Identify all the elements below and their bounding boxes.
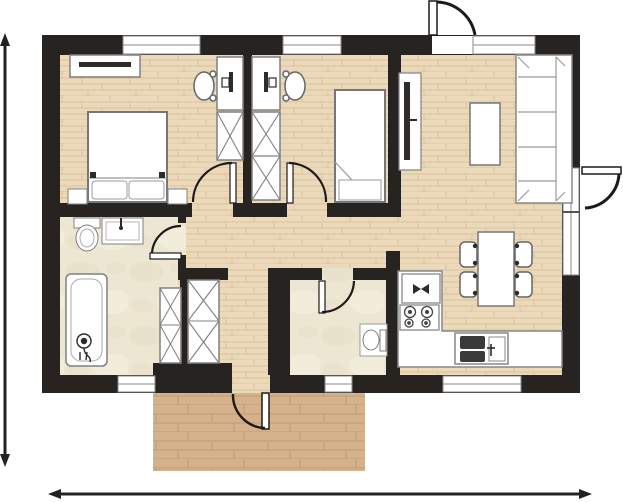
window-top-1: [123, 36, 200, 54]
appliance-box: [402, 274, 440, 303]
wc-room: [360, 324, 387, 356]
bathroom-door-opening: [178, 223, 186, 255]
toilet: [74, 218, 100, 251]
wall-bedrooms-south-c: [327, 203, 401, 217]
wall-wc-north-b: [353, 268, 390, 280]
floor-plan-image: [0, 0, 623, 502]
single-bed: [335, 90, 385, 202]
wall-bathroom-east-a: [178, 217, 186, 223]
wc-door-opening: [322, 268, 353, 280]
window-bottom-1: [118, 376, 155, 392]
bed-corner-mark-right: [159, 172, 165, 178]
bedroom1-door-opening: [192, 203, 233, 217]
wardrobe-bedroom2: [252, 112, 280, 200]
wall-below-wardrobes: [153, 363, 232, 375]
tv-panel: [399, 73, 421, 170]
bedroom2-door-opening: [287, 203, 327, 217]
wall-wc-north-a: [290, 268, 322, 280]
kitchen-sink: [455, 333, 508, 364]
dining-table: [478, 232, 514, 306]
sofa: [516, 55, 572, 203]
window-bottom-3: [443, 376, 521, 392]
washbasin: [102, 218, 143, 244]
side-door-right: [582, 167, 621, 208]
wardrobe-bedroom1: [217, 112, 243, 160]
deck-door-opening: [232, 375, 270, 393]
wall-bedrooms-south-a: [60, 203, 192, 217]
pillow-right: [129, 181, 164, 199]
toilet: [363, 330, 386, 351]
bathtub: [66, 274, 107, 366]
arrowhead-right-icon: [579, 489, 592, 499]
cooktop: [400, 305, 439, 330]
door-swing-arc: [585, 174, 619, 208]
arrowhead-down-icon: [0, 454, 10, 467]
wall-bedrooms-south-b: [233, 203, 287, 217]
bed-corner-mark-left: [90, 172, 96, 178]
window-bottom-2: [325, 376, 352, 392]
hallway-wardrobe: [188, 280, 219, 363]
wall-exterior-left: [42, 35, 60, 393]
wall-passage-east: [268, 268, 290, 375]
floor-plan-svg: [0, 0, 623, 502]
arrowhead-left-icon: [48, 489, 61, 499]
wardrobe-bathroom: [160, 288, 181, 363]
nightstand-right: [168, 189, 187, 204]
entrance-door-opening: [432, 36, 473, 54]
window-top-3: [473, 36, 535, 54]
vertical-dimension-arrow: [0, 33, 10, 467]
nightstand-left: [68, 189, 87, 204]
tv-icon: [404, 82, 410, 160]
tv-on-console-icon: [79, 62, 131, 67]
entrance-door: [429, 1, 475, 35]
desk-chair-2: [283, 71, 305, 101]
coffee-table: [470, 103, 500, 165]
arrowhead-up-icon: [0, 33, 10, 46]
door-swing-arc: [437, 2, 475, 35]
horizontal-dimension-arrow: [48, 489, 592, 499]
wall-bedroom-divider: [243, 55, 252, 203]
desk-chair-1: [194, 71, 216, 101]
wall-hall-south: [186, 268, 228, 280]
deck-floor: [153, 393, 365, 471]
window-top-2: [283, 36, 341, 54]
pillow-left: [92, 181, 127, 199]
blanket: [339, 180, 381, 200]
